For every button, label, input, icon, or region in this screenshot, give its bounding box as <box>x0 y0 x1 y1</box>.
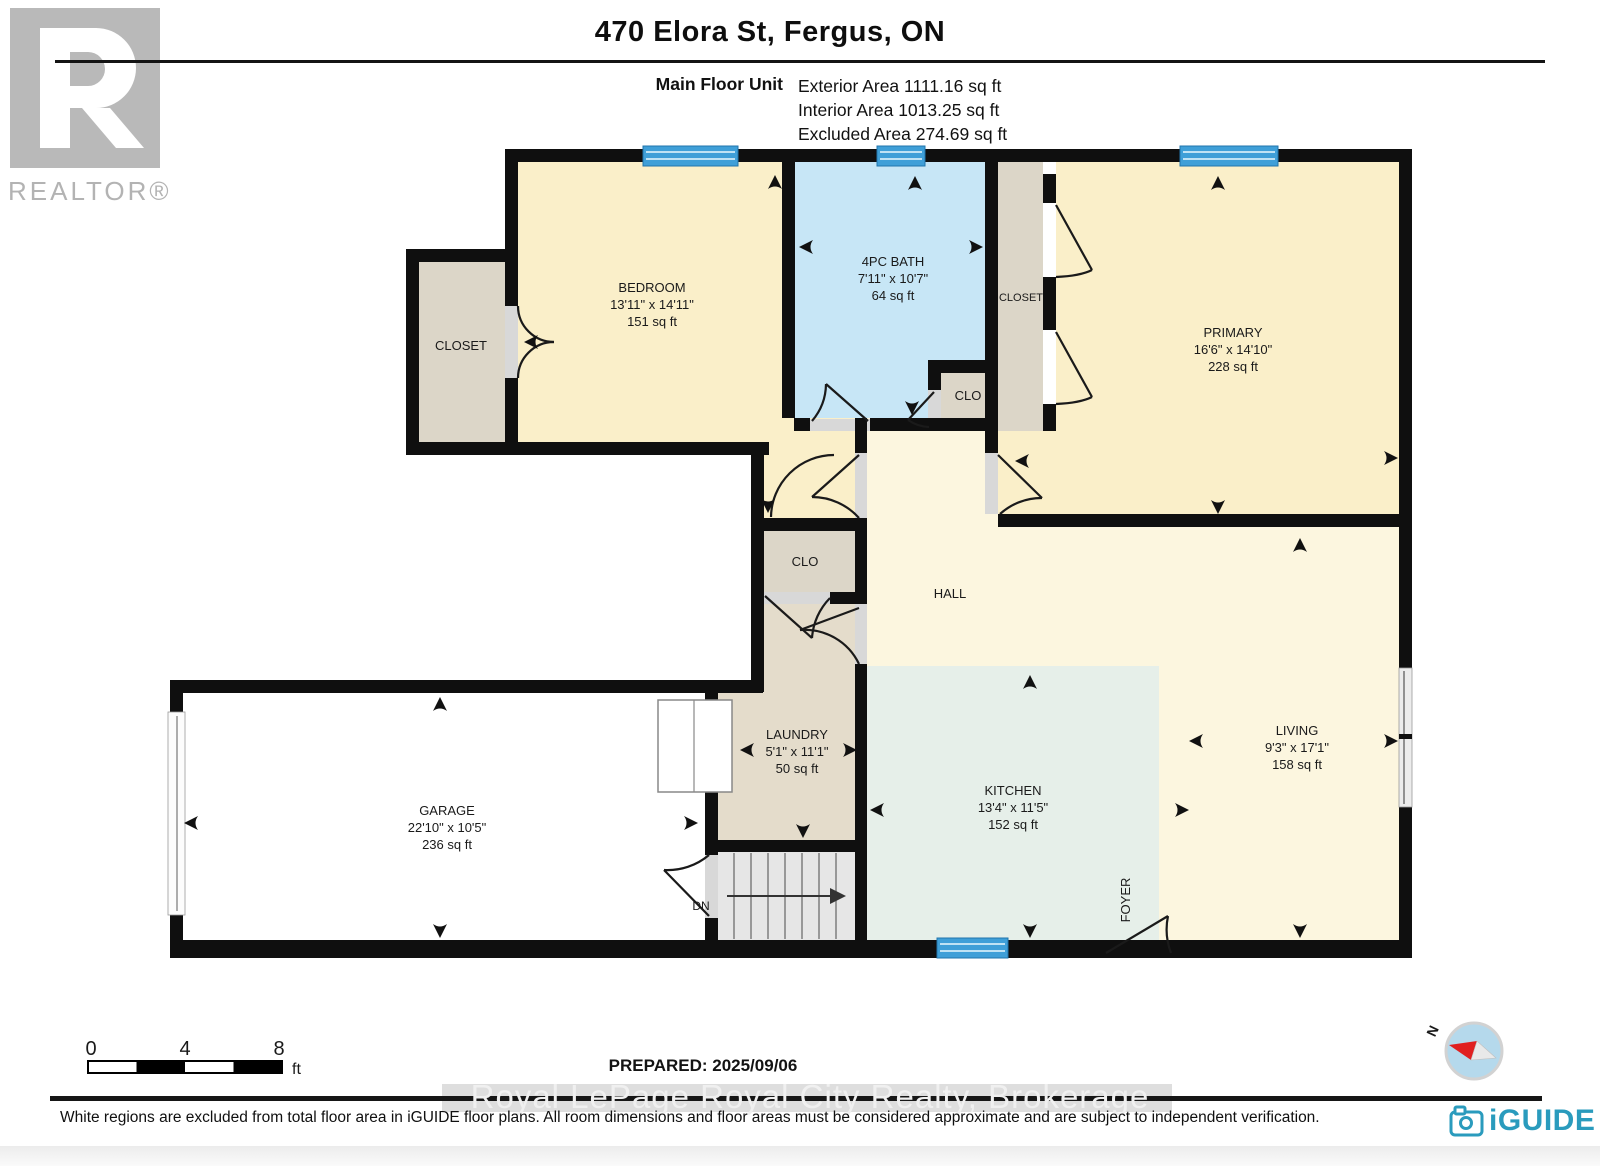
bedroom-dims: 13'11" x 14'11" <box>610 297 694 312</box>
living-area: 158 sq ft <box>1272 757 1322 772</box>
kitchen-area: 152 sq ft <box>988 817 1038 832</box>
bath-dims: 7'11" x 10'7" <box>858 271 929 286</box>
primary-closet-label: CLOSET <box>999 292 1043 304</box>
garage-label: GARAGE <box>419 803 475 818</box>
kitchen-dims: 13'4" x 11'5" <box>978 800 1049 815</box>
appliance-box <box>658 700 732 792</box>
compass-icon: N <box>1423 1023 1502 1079</box>
bedroom-label: BEDROOM <box>618 280 685 295</box>
exterior-area: Exterior Area 1111.16 sq ft <box>798 74 1007 98</box>
foyer-label: FOYER <box>1118 878 1133 923</box>
disclaimer-text: White regions are excluded from total fl… <box>60 1109 1320 1127</box>
compass-north-label: N <box>1423 1023 1442 1039</box>
iguide-wordmark: iGUIDE <box>1489 1104 1595 1138</box>
area-stats: Exterior Area 1111.16 sq ft Interior Are… <box>798 74 1007 146</box>
hall-label: HALL <box>934 586 967 601</box>
living-dims: 9'3" x 17'1" <box>1265 740 1329 755</box>
bath-area: 64 sq ft <box>872 288 915 303</box>
bath-clo-label: CLO <box>955 388 982 403</box>
scale-unit: ft <box>292 1061 301 1078</box>
realtor-wordmark: REALTOR® <box>8 176 172 207</box>
floor-plan-drawing: BEDROOM 13'11" x 14'11" 151 sq ft CLOSET… <box>0 0 1600 1166</box>
bottom-edge-strip <box>0 1146 1600 1166</box>
bath-label: 4PC BATH <box>862 254 925 269</box>
garage-dims: 22'10" x 10'5" <box>408 820 487 835</box>
excluded-area: Excluded Area 274.69 sq ft <box>798 122 1007 146</box>
floor-plan-page: BEDROOM 13'11" x 14'11" 151 sq ft CLOSET… <box>0 0 1600 1166</box>
primary-label: PRIMARY <box>1204 325 1263 340</box>
laundry-dims: 5'1" x 11'1" <box>765 744 828 759</box>
hall-clo-label: CLO <box>792 554 819 569</box>
page-title: 470 Elora St, Fergus, ON <box>0 16 1540 49</box>
scale-4: 4 <box>179 1038 190 1060</box>
laundry-area: 50 sq ft <box>776 761 819 776</box>
interior-area: Interior Area 1013.25 sq ft <box>798 98 1007 122</box>
kitchen-label: KITCHEN <box>984 783 1041 798</box>
stairs-dn-label: DN <box>692 899 709 913</box>
scale-8: 8 <box>273 1038 284 1060</box>
prepared-date: PREPARED: 2025/09/06 <box>503 1056 903 1076</box>
iguide-camera-icon <box>1447 1101 1487 1141</box>
bedroom-closet-label: CLOSET <box>435 338 487 353</box>
scale-bar: 0 4 8 ft <box>85 1038 301 1078</box>
primary-area: 228 sq ft <box>1208 359 1258 374</box>
laundry-label: LAUNDRY <box>766 727 828 742</box>
unit-label: Main Floor Unit <box>463 74 783 95</box>
bedroom-area: 151 sq ft <box>627 314 677 329</box>
header-divider <box>55 60 1545 63</box>
scale-0: 0 <box>85 1038 96 1060</box>
living-label: LIVING <box>1276 723 1319 738</box>
garage-area: 236 sq ft <box>422 837 472 852</box>
iguide-logo: iGUIDE <box>1447 1101 1595 1141</box>
primary-dims: 16'6" x 14'10" <box>1194 342 1273 357</box>
